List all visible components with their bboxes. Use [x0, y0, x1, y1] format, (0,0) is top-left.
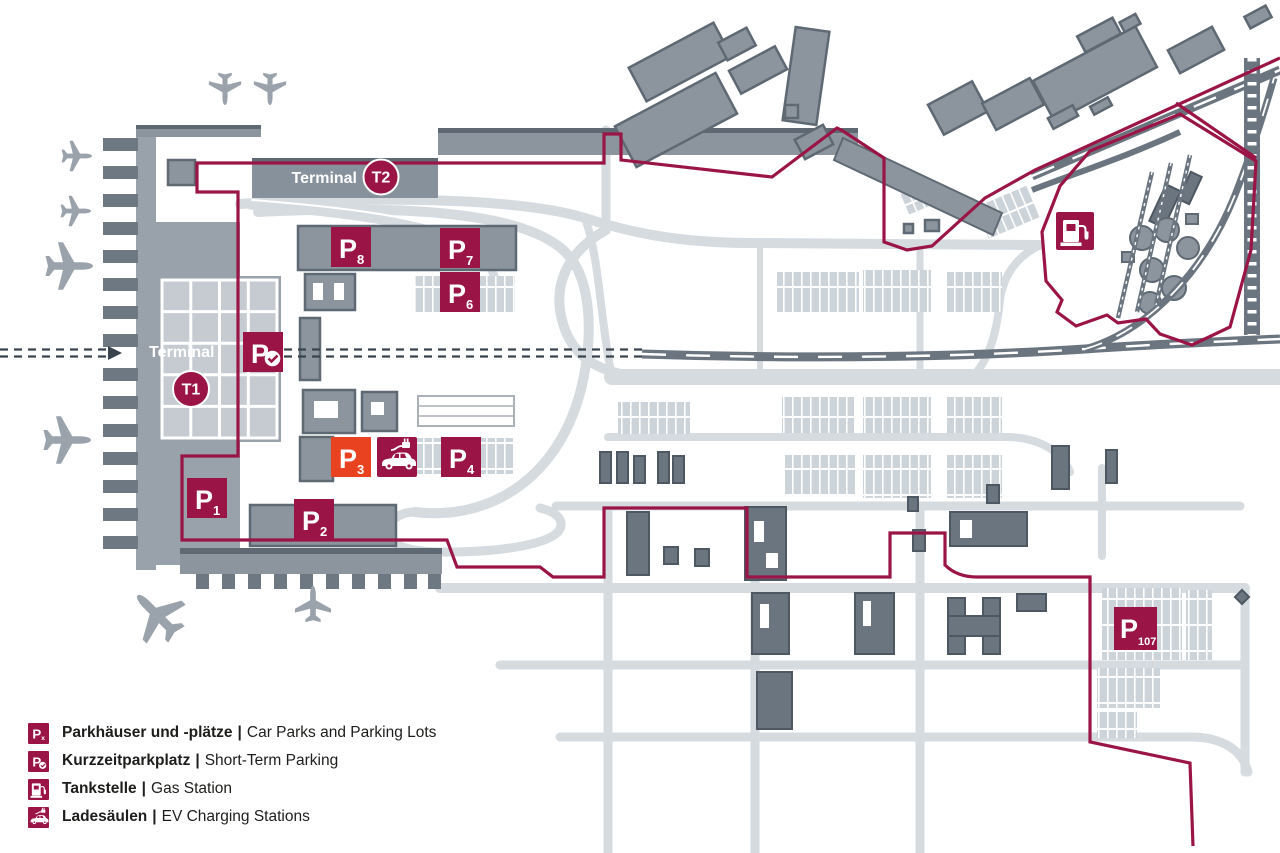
legend-separator: | [147, 808, 161, 825]
legend-label-en: Car Parks and Parking Lots [247, 724, 437, 741]
legend-separator: | [190, 752, 204, 769]
airplane-icon [61, 196, 91, 226]
legend-item-short-term-parking: P Kurzzeitparkplatz|Short-Term Parking [28, 750, 436, 772]
parking-badge-p1: P1 [187, 478, 227, 518]
airplane-icon [118, 576, 196, 654]
parking-badge-p107: P107 [1114, 607, 1157, 650]
legend-item-gas-station: Tankstelle|Gas Station [28, 778, 436, 800]
legend-item-car-parks: Px Parkhäuser und -plätze|Car Parks and … [28, 722, 436, 744]
parking-badge-p7: P7 [440, 228, 480, 268]
terminal-piers-south [196, 574, 441, 589]
airplane-icon [62, 141, 92, 171]
parking-lots-layer [410, 181, 1212, 738]
ev-charging-icon [28, 807, 49, 828]
legend-separator: | [137, 780, 151, 797]
parking-badge-p6: P6 [440, 272, 480, 312]
airplane-icon [254, 73, 286, 105]
terminal-t1-label: Terminal [149, 344, 215, 361]
legend-item-ev-charging: Ladesäulen|EV Charging Stations [28, 806, 436, 828]
gas-station-icon [28, 779, 49, 800]
legend-label-de: Tankstelle [62, 780, 137, 797]
tank-farm [1122, 214, 1199, 314]
terminal-t1-code: T1 [182, 382, 201, 399]
legend-label-en: Short-Term Parking [205, 752, 339, 769]
car-parks-icon: Px [28, 723, 49, 744]
legend-label-de: Kurzzeitparkplatz [62, 752, 190, 769]
gas-station-icon [1056, 212, 1094, 250]
parking-badge-p8: P8 [331, 227, 371, 267]
airplane-icon [44, 416, 92, 464]
terminal-piers-west [103, 138, 138, 549]
short-term-parking-icon: P [28, 751, 49, 772]
airplane-icon [295, 586, 331, 622]
airplane-icon [46, 242, 94, 290]
legend-label-en: EV Charging Stations [162, 808, 310, 825]
legend-separator: | [233, 724, 247, 741]
short-term-parking-badge: P [243, 332, 283, 372]
legend: Px Parkhäuser und -plätze|Car Parks and … [28, 722, 436, 828]
airport-parking-map: Terminal T2 Terminal T1 P P8 P7 [0, 0, 1280, 853]
parking-badge-p2: P2 [294, 499, 334, 539]
legend-label-de: Ladesäulen [62, 808, 147, 825]
parking-badge-p3: P3 [331, 437, 371, 477]
terminal-t2-code: T2 [372, 170, 391, 187]
parking-badge-p4: P4 [441, 437, 481, 477]
legend-label-en: Gas Station [151, 780, 232, 797]
ev-charging-icon [377, 437, 417, 477]
legend-label-de: Parkhäuser und -plätze [62, 724, 233, 741]
terminal-t2-label: Terminal [292, 170, 358, 187]
airplane-icon [209, 73, 241, 105]
